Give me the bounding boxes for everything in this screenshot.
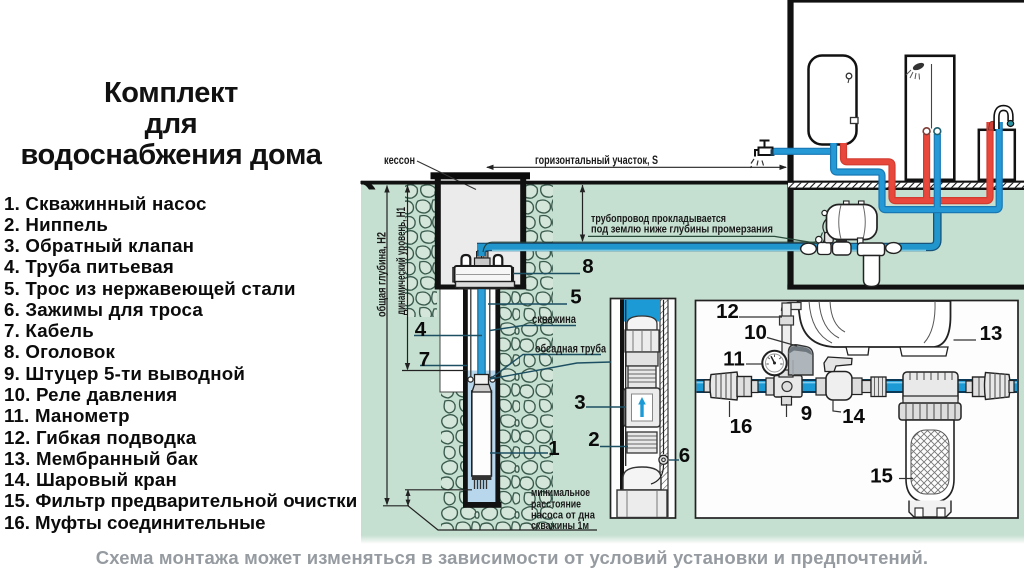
svg-text:скважина: скважина — [532, 314, 576, 326]
svg-text:7: 7 — [419, 348, 430, 371]
svg-text:скважины 1м: скважины 1м — [531, 520, 589, 532]
svg-text:9: 9 — [801, 402, 812, 425]
svg-text:14: 14 — [842, 405, 865, 428]
svg-text:1: 1 — [548, 437, 559, 460]
svg-text:2: 2 — [588, 428, 599, 451]
svg-text:11: 11 — [723, 348, 745, 371]
svg-text:12: 12 — [716, 300, 739, 323]
svg-text:15: 15 — [870, 465, 893, 488]
svg-text:4: 4 — [415, 318, 427, 341]
svg-text:10: 10 — [744, 321, 767, 344]
svg-text:3: 3 — [574, 391, 585, 414]
svg-text:13: 13 — [980, 322, 1003, 345]
svg-text:минимальное: минимальное — [531, 487, 590, 499]
svg-text:6: 6 — [679, 444, 690, 467]
svg-text:под землю ниже глубины промерз: под землю ниже глубины промерзания — [591, 224, 773, 236]
svg-text:5: 5 — [570, 286, 581, 309]
svg-text:8: 8 — [582, 255, 593, 278]
svg-text:горизонтальный участок, S: горизонтальный участок, S — [535, 155, 658, 167]
svg-text:обсадная труба: обсадная труба — [535, 344, 606, 356]
svg-text:общая глубина, Н2: общая глубина, Н2 — [375, 232, 389, 317]
svg-text:16: 16 — [730, 415, 753, 438]
svg-text:кессон: кессон — [384, 155, 415, 167]
svg-text:динамический уровень, Н1: динамический уровень, Н1 — [394, 207, 408, 315]
